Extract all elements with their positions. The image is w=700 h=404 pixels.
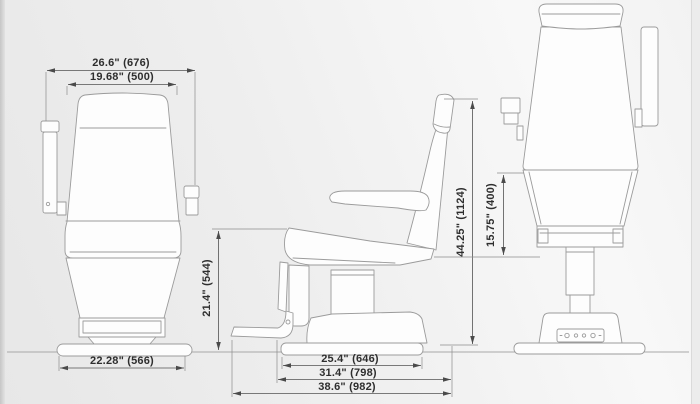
front-backrest-seat bbox=[65, 93, 181, 258]
back-left-armrest-bracket bbox=[501, 98, 520, 113]
dim-backrest-height: 15.75" (400) bbox=[434, 173, 540, 257]
back-view bbox=[501, 4, 658, 354]
back-backrest bbox=[523, 27, 638, 170]
dimension-label-front-overall-width: 26.6" (676) bbox=[92, 57, 150, 69]
back-right-armrest-pad bbox=[641, 27, 658, 126]
back-headrest bbox=[539, 4, 623, 29]
front-left-armrest-cap bbox=[41, 121, 59, 132]
chair-dimension-drawing: 26.6" (676) 19.68" (500) 22.28" (566) 21… bbox=[0, 0, 700, 404]
dimension-label-front-seat-width: 19.68" (500) bbox=[90, 71, 154, 83]
dimension-label-seat-height: 21.4" (544) bbox=[201, 259, 213, 317]
diagram-canvas: 26.6" (676) 19.68" (500) 22.28" (566) 21… bbox=[0, 0, 700, 404]
dim-front-seat-width: 19.68" (500) bbox=[67, 71, 177, 95]
front-left-armrest bbox=[43, 132, 57, 213]
side-base-housing bbox=[307, 312, 427, 343]
back-base-housing bbox=[539, 313, 622, 343]
side-backrest bbox=[407, 117, 449, 250]
side-footrest bbox=[231, 311, 293, 338]
front-right-armrest bbox=[186, 198, 198, 215]
back-base-plate bbox=[514, 343, 645, 354]
dimension-label-overall-length: 38.6" (982) bbox=[318, 381, 376, 393]
side-view bbox=[231, 94, 454, 355]
dimension-label-base-plate-length: 25.4" (646) bbox=[321, 353, 379, 365]
front-left-armrest-bracket bbox=[57, 202, 66, 215]
dim-front-base-width: 22.28" (566) bbox=[59, 355, 185, 371]
side-footrest-arm bbox=[278, 262, 288, 312]
side-armrest bbox=[330, 191, 429, 211]
back-lower-frame bbox=[523, 170, 638, 226]
dimension-label-base-length: 31.4" (798) bbox=[319, 367, 377, 379]
front-view bbox=[41, 93, 199, 356]
dimension-label-backrest-height: 15.75" (400) bbox=[485, 183, 497, 247]
back-left-armrest-mount bbox=[504, 113, 518, 124]
back-side-tab bbox=[517, 126, 523, 140]
front-lower-frame bbox=[66, 258, 180, 318]
back-column-upper bbox=[566, 247, 594, 295]
side-column bbox=[331, 270, 374, 318]
dimension-label-overall-height: 44.25" (1124) bbox=[455, 187, 467, 257]
back-right-armrest-bracket bbox=[635, 109, 642, 127]
back-column-lower bbox=[570, 295, 590, 313]
back-mechanism bbox=[537, 226, 623, 247]
dimension-label-front-base-width: 22.28" (566) bbox=[90, 355, 154, 367]
front-right-armrest-cap bbox=[184, 186, 199, 198]
